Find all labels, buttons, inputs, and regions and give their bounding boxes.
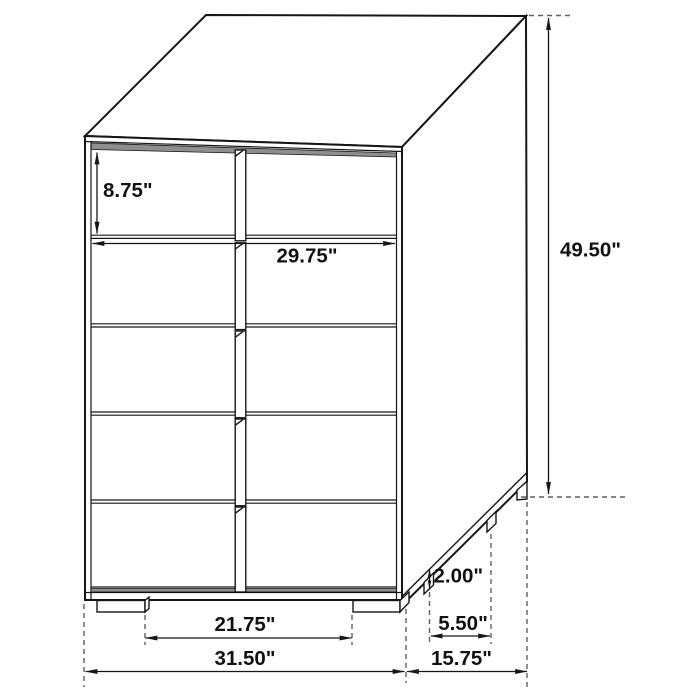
foot-front-left-bevel xyxy=(145,597,149,612)
dim-label-overall-depth: 15.75" xyxy=(431,647,492,670)
drawer-handle xyxy=(235,507,246,592)
dim-label-overall-height: 49.50" xyxy=(560,239,621,262)
dim-label-overall-width: 31.50" xyxy=(214,647,275,670)
diagram-canvas: 8.75" 29.75" 49.50" 2.00" 5.50" 21.75" 3… xyxy=(0,0,700,700)
drawer-handle xyxy=(235,243,246,330)
drawer-handle xyxy=(235,150,246,241)
drawer-handle xyxy=(235,419,246,506)
dim-label-drawer-width: 29.75" xyxy=(276,245,337,268)
dim-label-leg-height: 2.00" xyxy=(434,565,484,588)
dim-label-drawer-height: 8.75" xyxy=(103,179,153,202)
drawer-handles xyxy=(235,150,246,592)
chest-illustration xyxy=(85,15,527,612)
dim-label-front-leg-gap: 21.75" xyxy=(214,613,275,636)
chest-dimension-drawing: 8.75" 29.75" 49.50" 2.00" 5.50" 21.75" 3… xyxy=(0,0,700,700)
foot-front-left xyxy=(97,601,145,613)
dim-label-side-leg-gap: 5.50" xyxy=(438,612,488,635)
drawer-handle xyxy=(235,331,246,418)
foot-front-right xyxy=(353,601,400,613)
